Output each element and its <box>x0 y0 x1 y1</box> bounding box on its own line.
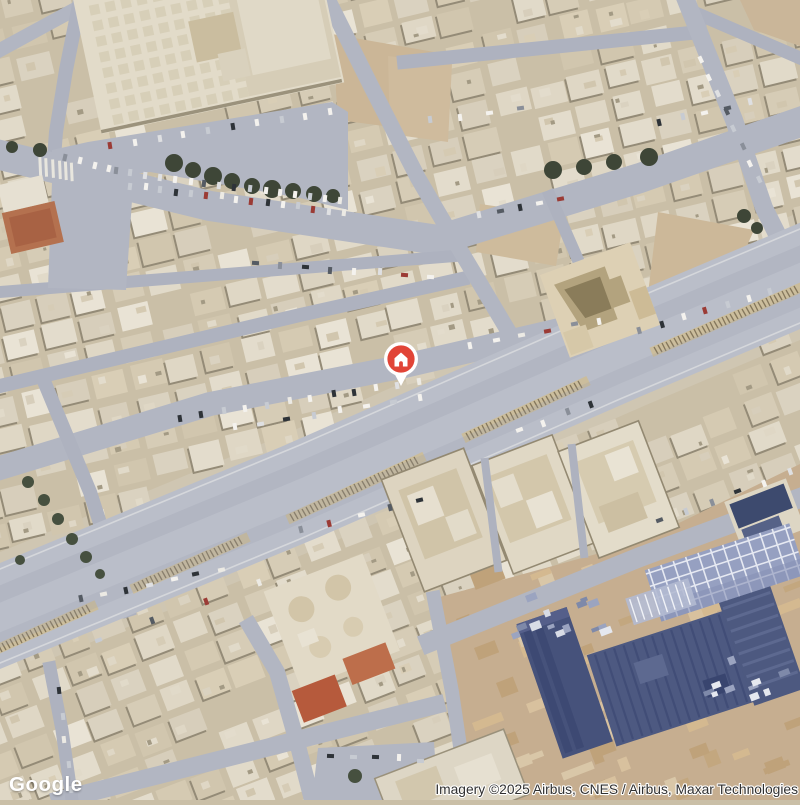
svg-text:Imagery ©2025 Airbus, CNES / A: Imagery ©2025 Airbus, CNES / Airbus, Max… <box>435 782 798 797</box>
svg-text:Google: Google <box>9 773 83 796</box>
